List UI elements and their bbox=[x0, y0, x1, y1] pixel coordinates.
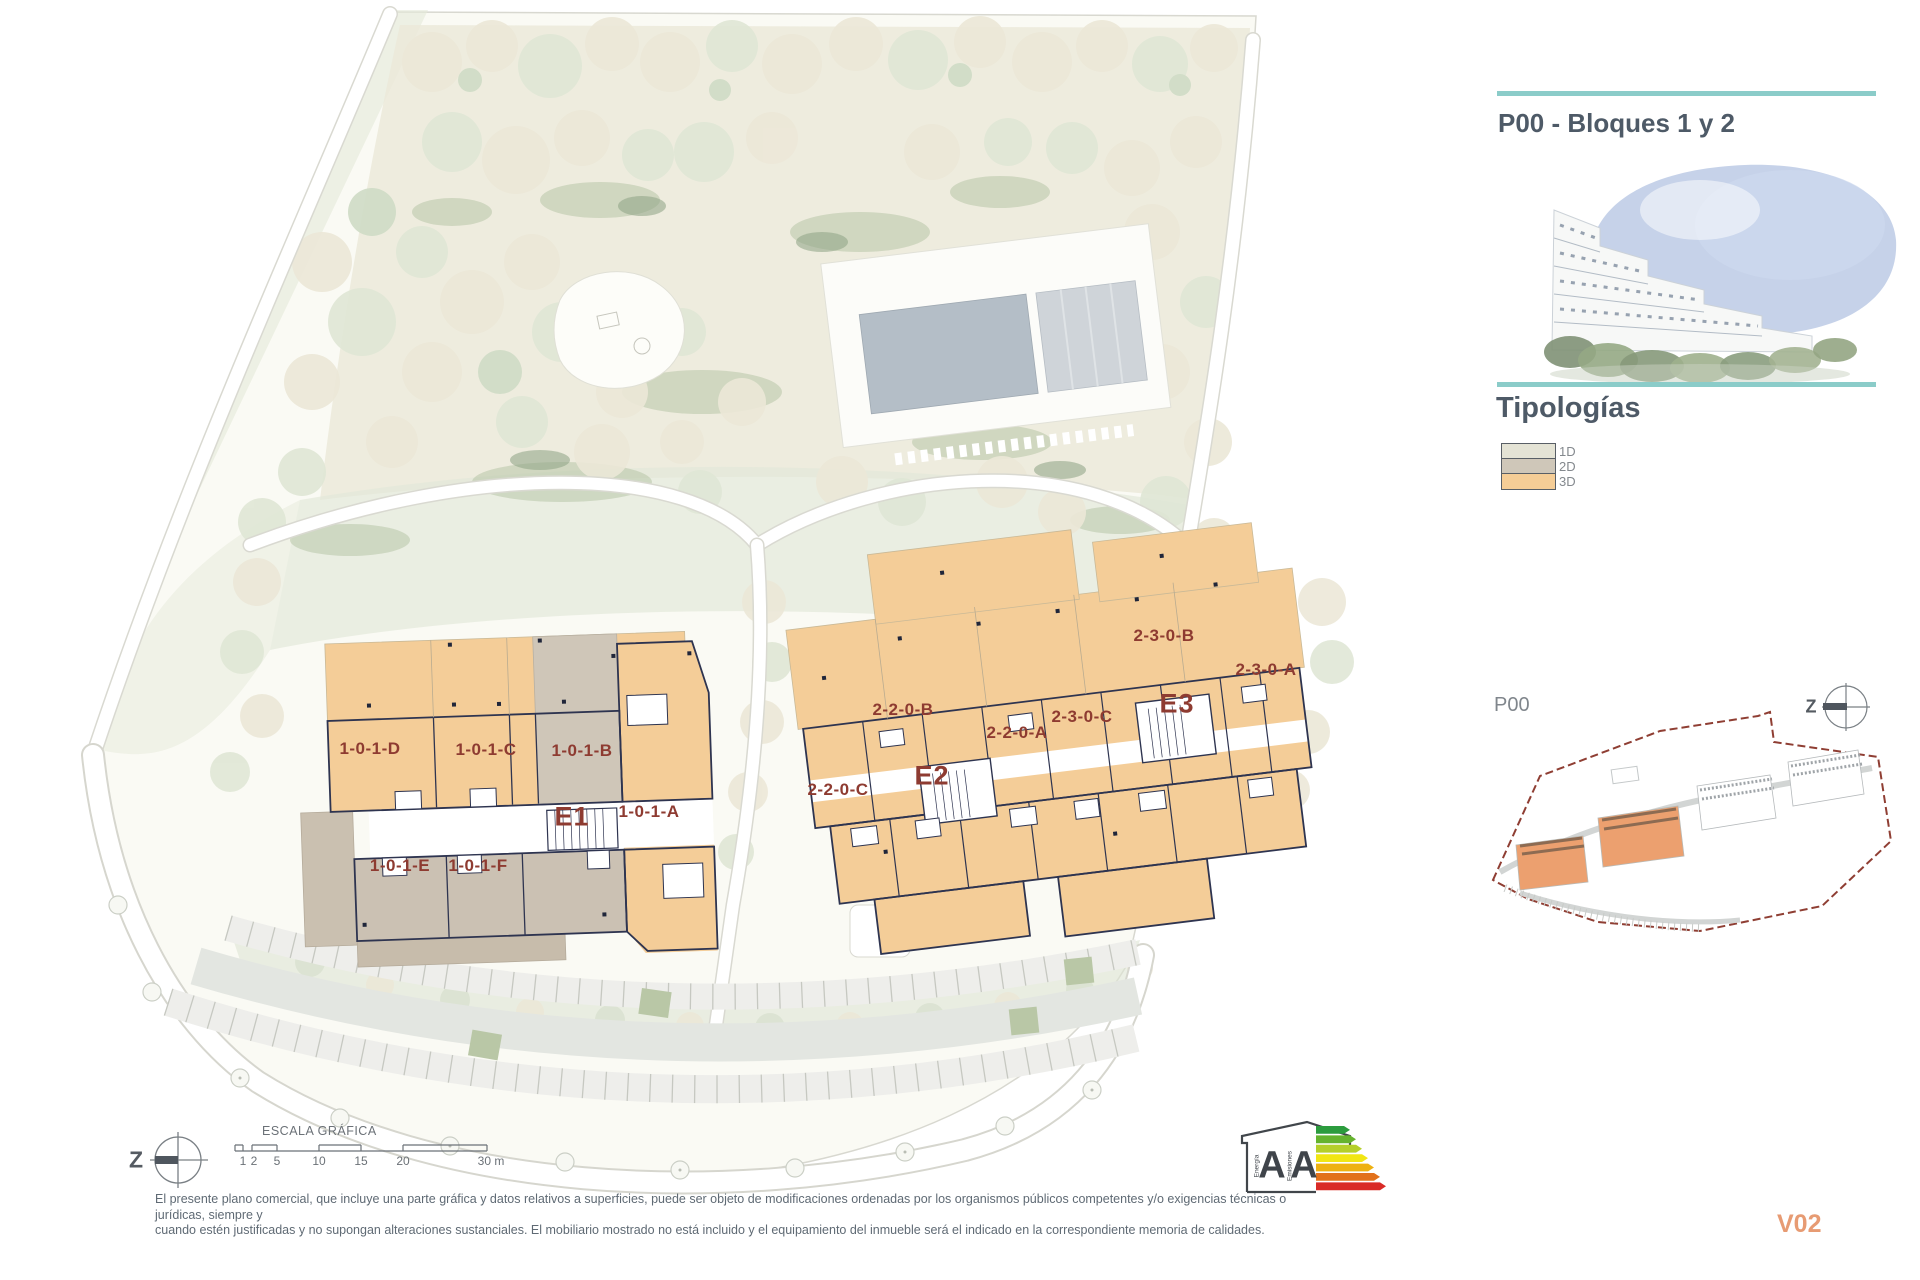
typologies-title: Tipologías bbox=[1496, 392, 1640, 425]
playground bbox=[554, 272, 684, 389]
keyplan bbox=[1493, 683, 1891, 931]
unit-label: 2-2-0-B bbox=[872, 700, 933, 720]
block-label: E2 bbox=[914, 761, 949, 792]
unit-label: 2-3-0-A bbox=[1235, 660, 1296, 680]
scale-tick: 2 bbox=[251, 1154, 258, 1168]
keyplan-floor-label: P00 bbox=[1494, 694, 1530, 717]
scale-tick: 5 bbox=[274, 1154, 281, 1168]
keyplan-north-arrow bbox=[1822, 683, 1870, 731]
emissions-letter: A bbox=[1290, 1145, 1317, 1188]
unit-label: 1-0-1-D bbox=[339, 739, 400, 759]
scale-bar-title: ESCALA GRÁFICA bbox=[262, 1124, 377, 1138]
unit-label: 2-3-0-B bbox=[1133, 626, 1194, 646]
energy-letter: A bbox=[1258, 1145, 1285, 1188]
scale-tick: 1 bbox=[240, 1154, 247, 1168]
unit-label: 1-0-1-A bbox=[618, 802, 679, 822]
legend-row-3d: 3D bbox=[1501, 474, 1576, 489]
scale-tick: 20 bbox=[396, 1154, 409, 1168]
emissions-caption: Emisiones bbox=[1287, 1151, 1294, 1181]
keyplan-north-letter: Z bbox=[1806, 697, 1817, 718]
divider-typologies bbox=[1497, 382, 1876, 387]
block-label: E3 bbox=[1159, 689, 1194, 720]
disclaimer-line-2: cuando estén justificadas y no supongan … bbox=[155, 1223, 1335, 1239]
block-label: E1 bbox=[554, 802, 589, 833]
unit-label: 1-0-1-B bbox=[551, 741, 612, 761]
page-title: P00 - Bloques 1 y 2 bbox=[1498, 108, 1735, 139]
legend-label-3d: 3D bbox=[1559, 474, 1576, 489]
building-e1 bbox=[295, 631, 718, 969]
disclaimer: El presente plano comercial, que incluye… bbox=[155, 1192, 1335, 1239]
building-render-image bbox=[1544, 165, 1896, 384]
divider-top bbox=[1497, 91, 1876, 96]
unit-label: 1-0-1-F bbox=[448, 856, 507, 876]
plan-sheet: P00 - Bloques 1 y 2 Tipologías 1D 2D 3D … bbox=[0, 0, 1920, 1280]
legend-label-1d: 1D bbox=[1559, 444, 1576, 459]
typology-legend: 1D 2D 3D bbox=[1501, 444, 1576, 489]
pool-area bbox=[821, 224, 1173, 466]
disclaimer-line-1: El presente plano comercial, que incluye… bbox=[155, 1192, 1335, 1223]
north-letter: Z bbox=[129, 1147, 143, 1174]
north-arrow bbox=[150, 1132, 208, 1188]
version-label: V02 bbox=[1777, 1210, 1821, 1239]
energy-caption: Energía bbox=[1254, 1155, 1261, 1178]
legend-swatch-3d bbox=[1501, 473, 1556, 490]
scale-tick: 30 m bbox=[478, 1154, 505, 1168]
unit-label: 2-3-0-C bbox=[1051, 707, 1112, 727]
unit-label: 1-0-1-E bbox=[370, 856, 430, 876]
legend-label-2d: 2D bbox=[1559, 459, 1576, 474]
unit-label: 2-2-0-A bbox=[986, 723, 1047, 743]
scale-tick: 10 bbox=[312, 1154, 325, 1168]
site-plan-drawing bbox=[0, 0, 1920, 1280]
unit-label: 2-2-0-C bbox=[807, 780, 868, 800]
unit-label: 1-0-1-C bbox=[455, 740, 516, 760]
scale-tick: 15 bbox=[354, 1154, 367, 1168]
